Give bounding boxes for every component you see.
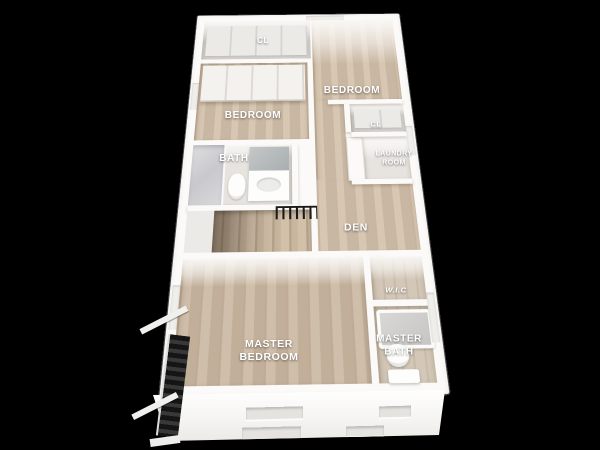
window-recess [306,16,344,21]
room-label-den: DEN [344,221,368,234]
toilet [227,173,245,199]
room-label-master-bedroom: MASTER BEDROOM [239,338,298,364]
vanity [248,147,289,201]
room-label-bedroom-left: BEDROOM [225,110,281,123]
wardrobe [200,65,305,102]
room-label-master-bath: MASTER BATH [376,334,422,359]
linen-cabinet [346,137,366,181]
stair-railing [276,206,318,220]
room-label-laundry: LAUNDRY ROOM [376,150,413,168]
wall-face [180,257,365,288]
mirror [249,147,289,171]
bedroom-left-floor [194,63,309,141]
facade-window [242,426,301,442]
room-label-closet-right: CL [370,119,381,128]
fire-escape-rail [139,306,188,335]
fire-escape-platform [150,435,181,447]
closet-top [201,20,311,59]
room-label-bath: BATH [219,153,248,166]
floor-plan-render: CL BEDROOM BEDROOM CL BATH LAUNDRY ROOM … [0,0,600,450]
wall [351,131,406,136]
wall-face [370,256,425,280]
room-label-wic: W.I.C [385,285,406,294]
facade-window [379,406,411,420]
room-label-bedroom-right: BEDROOM [324,85,380,98]
wall [292,144,299,210]
plan-3d-scene [182,0,420,384]
wall [328,99,403,104]
fire-escape [130,295,210,450]
stair-landing [183,211,214,253]
wall-face [311,19,397,64]
sink-basin [256,177,281,192]
den-floor [316,178,420,251]
room-label-closet-top: CL [257,36,269,46]
wall [352,178,413,184]
fire-escape-stairs [156,334,190,438]
sink [388,369,421,383]
facade-window [346,426,384,439]
facade-window [246,406,303,421]
